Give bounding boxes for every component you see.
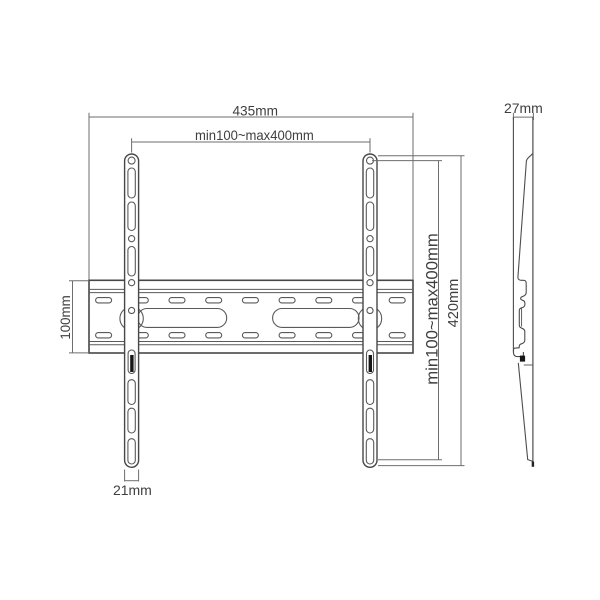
- svg-text:21mm: 21mm: [113, 482, 152, 498]
- svg-text:27mm: 27mm: [504, 100, 543, 116]
- svg-text:100mm: 100mm: [57, 295, 73, 339]
- svg-text:min100~max400mm: min100~max400mm: [195, 127, 314, 143]
- svg-text:420mm: 420mm: [446, 279, 462, 328]
- svg-text:min100~max400mm: min100~max400mm: [423, 233, 441, 385]
- svg-text:435mm: 435mm: [232, 103, 278, 119]
